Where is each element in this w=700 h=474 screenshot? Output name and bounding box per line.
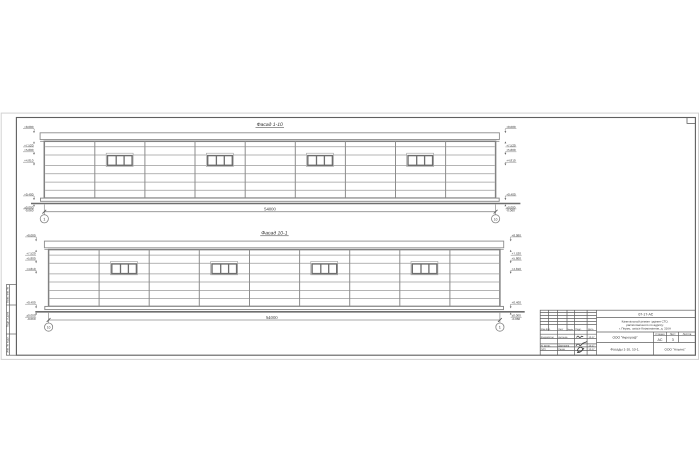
svg-text:АС: АС (658, 338, 663, 342)
svg-text:Взам. инв. №: Взам. инв. № (7, 287, 10, 303)
svg-text:Подп. и дата: Подп. и дата (7, 311, 10, 327)
svg-text:Дата: Дата (588, 328, 594, 331)
svg-text:Антонов: Антонов (558, 336, 568, 339)
svg-text:07-17-АС: 07-17-АС (638, 313, 653, 317)
svg-text:10: 10 (47, 326, 51, 330)
svg-text:Разработал: Разработал (541, 336, 555, 339)
svg-text:№док.: №док. (568, 328, 574, 331)
svg-text:1: 1 (499, 325, 501, 330)
svg-text:54000: 54000 (264, 207, 276, 212)
svg-text:-0.060: -0.060 (27, 317, 36, 321)
svg-text:+4.810: +4.810 (24, 159, 34, 163)
svg-text:Листов: Листов (683, 333, 692, 336)
svg-text:Лист: Лист (670, 333, 677, 336)
svg-text:+5.800: +5.800 (506, 148, 516, 152)
svg-text:10.17: 10.17 (589, 336, 596, 339)
svg-text:1: 1 (43, 216, 45, 221)
svg-text:ООО "Альянс": ООО "Альянс" (665, 348, 686, 352)
svg-text:+0.400: +0.400 (24, 192, 34, 196)
svg-text:+8.080: +8.080 (506, 125, 516, 129)
svg-text:10: 10 (494, 217, 498, 221)
svg-text:Инв. № подл.: Инв. № подл. (7, 336, 10, 352)
svg-text:Изм.Кол.: Изм.Кол. (541, 328, 551, 331)
svg-text:Сизов: Сизов (558, 348, 565, 351)
svg-text:ГИП: ГИП (541, 348, 546, 351)
svg-text:+8.080: +8.080 (26, 233, 36, 237)
svg-text:+4.810: +4.810 (512, 267, 522, 271)
svg-text:-0.060: -0.060 (25, 209, 34, 213)
svg-text:+5.800: +5.800 (24, 148, 34, 152)
svg-text:+7.520: +7.520 (506, 143, 516, 147)
svg-text:+7.520: +7.520 (24, 143, 34, 147)
svg-text:+8.080: +8.080 (24, 125, 34, 129)
svg-text:+8.080: +8.080 (512, 233, 522, 237)
svg-text:Подп.: Подп. (575, 328, 582, 331)
svg-text:г. Пермь, шоссе Космонавтов, д: г. Пермь, шоссе Космонавтов, д. 316А (619, 326, 671, 330)
svg-text:-0.060: -0.060 (506, 209, 515, 213)
svg-text:-0.060: -0.060 (512, 317, 521, 321)
svg-text:Лист: Лист (558, 328, 564, 331)
svg-text:+5.800: +5.800 (26, 257, 36, 261)
svg-text:Стадия: Стадия (655, 333, 665, 336)
svg-text:+4.810: +4.810 (26, 267, 36, 271)
svg-text:10.17: 10.17 (589, 348, 596, 351)
svg-text:ООО "Акрограф": ООО "Акрограф" (613, 336, 638, 340)
svg-text:54000: 54000 (266, 315, 278, 320)
svg-text:+7.520: +7.520 (512, 252, 522, 256)
svg-text:+5.800: +5.800 (512, 257, 522, 261)
svg-text:Фасады 1-10, 10-1.: Фасады 1-10, 10-1. (611, 348, 640, 352)
svg-text:+7.520: +7.520 (26, 252, 36, 256)
svg-text:+0.400: +0.400 (512, 301, 522, 305)
svg-text:3: 3 (672, 338, 674, 342)
svg-text:+0.400: +0.400 (506, 192, 516, 196)
svg-text:+4.810: +4.810 (506, 159, 516, 163)
svg-text:+0.400: +0.400 (26, 301, 36, 305)
